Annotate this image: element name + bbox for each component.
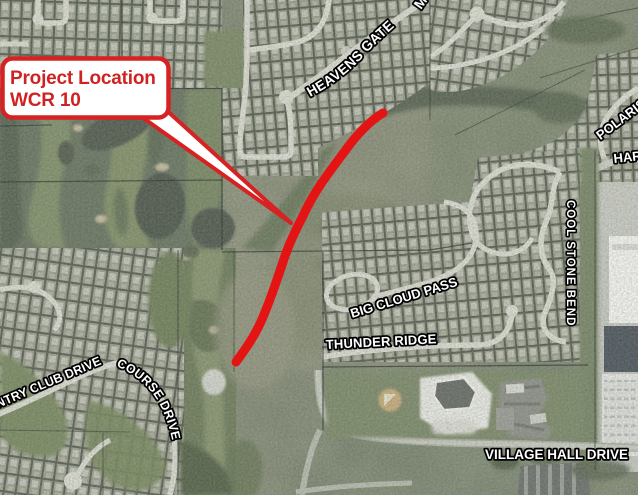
svg-text:COOL STONE BEND: COOL STONE BEND (564, 200, 576, 326)
svg-text:Project Location: Project Location (10, 68, 156, 89)
svg-text:WCR 10: WCR 10 (10, 90, 81, 111)
svg-text:VILLAGE HALL DRIVE: VILLAGE HALL DRIVE (485, 447, 628, 462)
